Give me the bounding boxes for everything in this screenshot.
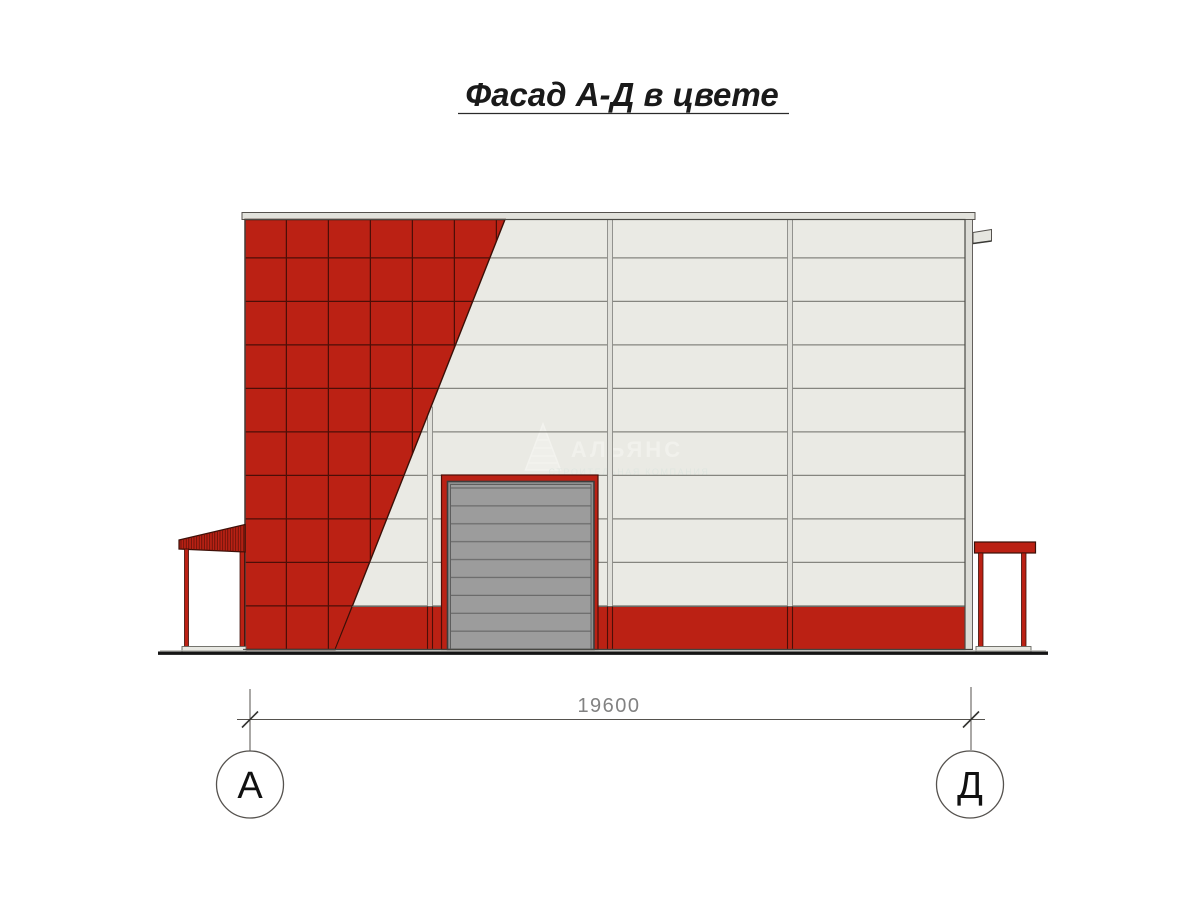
facade-elevation-canvas: Фасад А-Д в цвете АЛЬЯНС СТРОИТЕЛЬНАЯ КО… bbox=[0, 0, 1200, 900]
left-canopy-roof-corrugation bbox=[179, 525, 245, 553]
coping-strip bbox=[242, 213, 975, 220]
elevation-drawing-page: Фасад А-Д в цвете АЛЬЯНС СТРОИТЕЛЬНАЯ КО… bbox=[0, 0, 1200, 900]
mullion-right bbox=[788, 220, 793, 607]
axis-label-d: Д bbox=[957, 765, 983, 807]
right-canopy bbox=[975, 542, 1036, 652]
right-canopy-post-left bbox=[979, 553, 984, 647]
right-canopy-roof bbox=[975, 542, 1036, 553]
left-canopy bbox=[179, 525, 246, 653]
left-canopy-post-outer bbox=[185, 549, 189, 647]
mullion-left bbox=[428, 407, 433, 607]
red-plinth bbox=[335, 607, 965, 650]
axis-marker-d: Д bbox=[937, 751, 1004, 818]
axis-marker-a: А bbox=[217, 751, 284, 818]
left-canopy-post-inner bbox=[240, 552, 245, 647]
dimension-value: 19600 bbox=[577, 695, 640, 717]
right-canopy-post-right bbox=[1022, 553, 1027, 647]
dimension-group: 19600 bbox=[237, 687, 985, 751]
building-right-edge bbox=[965, 220, 973, 650]
garage-door-slats bbox=[451, 485, 592, 650]
mullion-center bbox=[608, 220, 613, 607]
page-title: Фасад А-Д в цвете bbox=[465, 76, 778, 113]
axis-label-a: А bbox=[237, 765, 263, 807]
